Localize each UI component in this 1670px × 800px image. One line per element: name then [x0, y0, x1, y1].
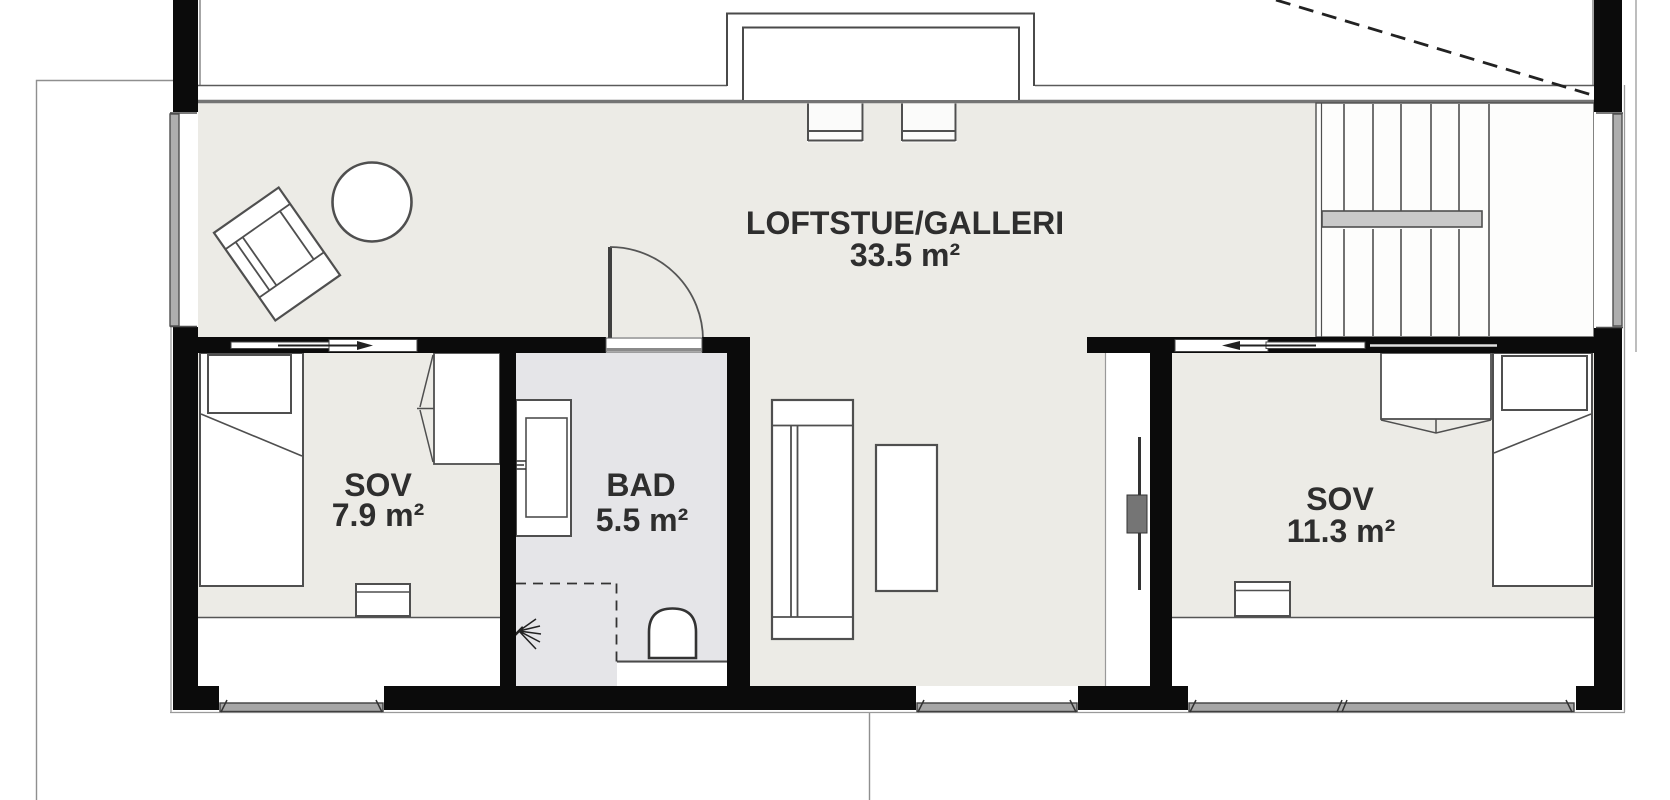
svg-text:7.9 m²: 7.9 m² — [332, 497, 424, 533]
svg-text:11.3 m²: 11.3 m² — [1287, 513, 1396, 549]
svg-text:33.5 m²: 33.5 m² — [850, 237, 960, 273]
svg-text:SOV: SOV — [1306, 481, 1374, 517]
svg-text:5.5 m²: 5.5 m² — [596, 502, 688, 538]
svg-text:BAD: BAD — [606, 467, 675, 503]
svg-text:LOFTSTUE/GALLERI: LOFTSTUE/GALLERI — [746, 205, 1064, 241]
